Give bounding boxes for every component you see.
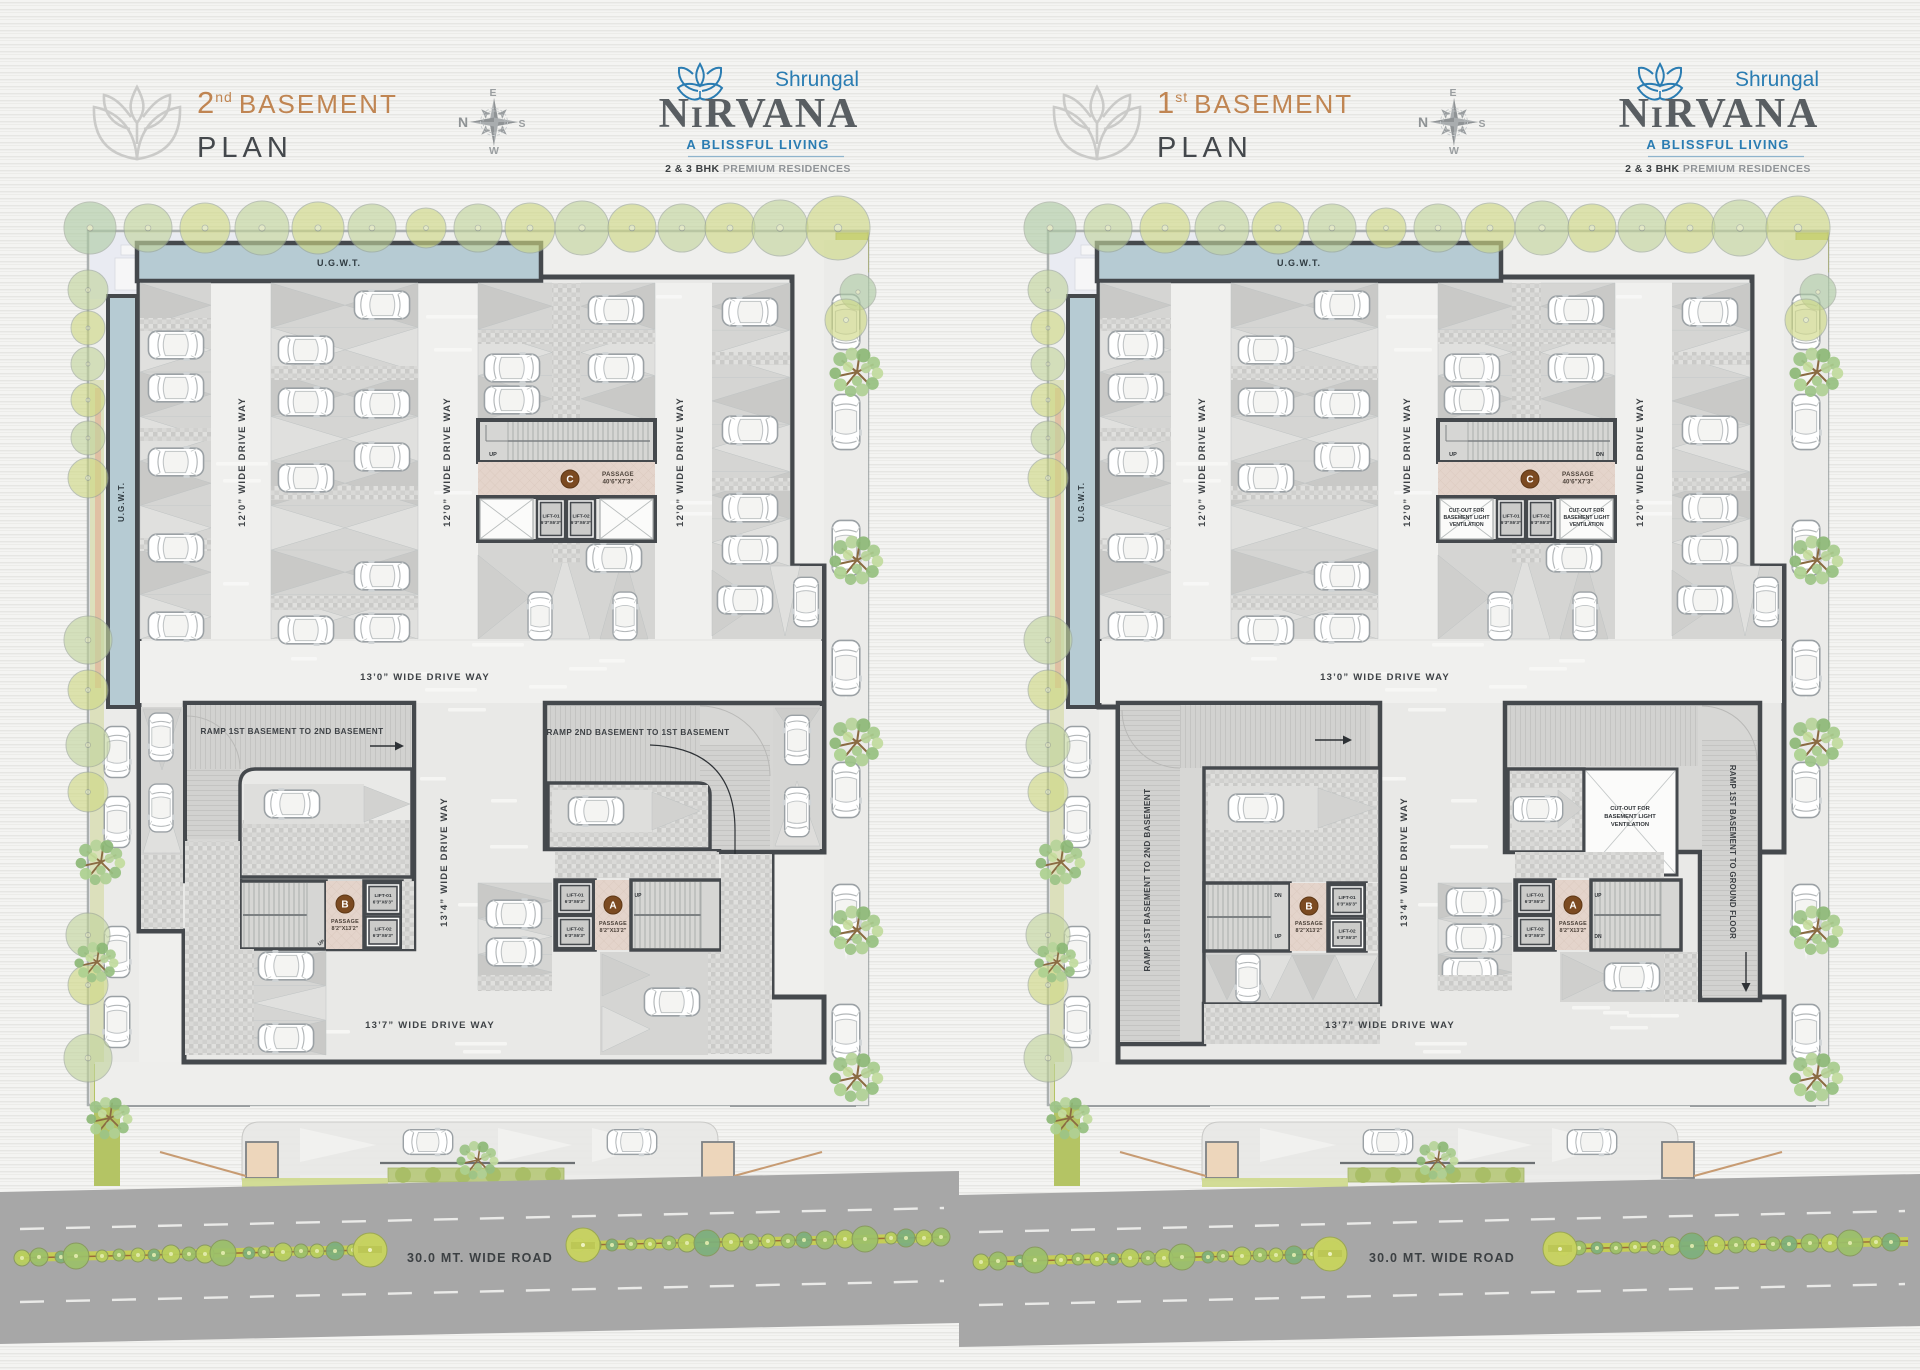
- svg-text:UP: UP: [635, 893, 643, 899]
- svg-text:30.0 MT. WIDE ROAD: 30.0 MT. WIDE ROAD: [407, 1251, 553, 1265]
- svg-text:2 & 3 BHK PREMIUM RESIDENCES: 2 & 3 BHK PREMIUM RESIDENCES: [1625, 163, 1811, 175]
- svg-text:12’0” WIDE DRIVE WAY: 12’0” WIDE DRIVE WAY: [675, 397, 686, 527]
- svg-text:VENTILATION: VENTILATION: [1611, 822, 1649, 828]
- svg-text:LIFT-01: LIFT-01: [566, 893, 583, 899]
- svg-text:E: E: [489, 87, 496, 99]
- svg-text:PLAN: PLAN: [197, 132, 293, 164]
- svg-text:PLAN: PLAN: [1157, 132, 1253, 164]
- svg-text:LIFT-01: LIFT-01: [374, 893, 391, 899]
- svg-text:LIFT-02: LIFT-02: [1532, 514, 1549, 520]
- svg-text:LIFT-02: LIFT-02: [566, 927, 583, 933]
- svg-text:DN: DN: [1274, 893, 1282, 899]
- svg-text:40’6”X7’3”: 40’6”X7’3”: [603, 479, 634, 486]
- svg-text:13’4” WIDE DRIVE WAY: 13’4” WIDE DRIVE WAY: [1399, 797, 1410, 927]
- svg-text:B: B: [1305, 902, 1312, 913]
- svg-text:RAMP 1ST BASEMENT TO 2ND BASEM: RAMP 1ST BASEMENT TO 2ND BASEMENT: [200, 727, 383, 736]
- svg-text:LIFT-02: LIFT-02: [572, 514, 589, 520]
- svg-text:12’0” WIDE DRIVE WAY: 12’0” WIDE DRIVE WAY: [1402, 397, 1413, 527]
- svg-text:VENTILATION: VENTILATION: [1449, 522, 1483, 528]
- svg-text:6’3”X6’3”: 6’3”X6’3”: [373, 933, 393, 938]
- svg-text:S: S: [1478, 118, 1485, 130]
- svg-text:UP: UP: [1275, 934, 1283, 940]
- svg-text:LIFT-01: LIFT-01: [1338, 895, 1355, 901]
- svg-text:BASEMENT LIGHT: BASEMENT LIGHT: [1443, 515, 1490, 521]
- svg-text:8’2”X13’2”: 8’2”X13’2”: [600, 928, 627, 934]
- svg-text:UP: UP: [1449, 452, 1457, 458]
- svg-text:W: W: [1449, 145, 1459, 157]
- svg-text:6’3”X6’3”: 6’3”X6’3”: [373, 900, 393, 905]
- svg-text:A: A: [609, 901, 616, 912]
- svg-text:C: C: [566, 475, 573, 486]
- svg-text:6’3”X6’3”: 6’3”X6’3”: [565, 899, 585, 904]
- svg-text:PASSAGE: PASSAGE: [1562, 471, 1594, 478]
- svg-text:6’3”X6’3”: 6’3”X6’3”: [565, 933, 585, 938]
- svg-text:UP: UP: [489, 452, 497, 458]
- svg-text:U.G.W.T.: U.G.W.T.: [1077, 482, 1086, 522]
- svg-text:13’0” WIDE DRIVE WAY: 13’0” WIDE DRIVE WAY: [360, 672, 490, 683]
- svg-text:12’0” WIDE DRIVE WAY: 12’0” WIDE DRIVE WAY: [442, 397, 453, 527]
- svg-text:RAMP 1ST BASEMENT TO 2ND BASEM: RAMP 1ST BASEMENT TO 2ND BASEMENT: [1143, 788, 1152, 971]
- svg-text:Shrungal: Shrungal: [1735, 68, 1819, 91]
- svg-text:E: E: [1449, 87, 1456, 99]
- svg-text:8’2”X13’2”: 8’2”X13’2”: [1560, 928, 1587, 934]
- svg-text:U.G.W.T.: U.G.W.T.: [317, 258, 361, 268]
- svg-text:VENTILATION: VENTILATION: [1569, 522, 1603, 528]
- svg-text:BASEMENT LIGHT: BASEMENT LIGHT: [1563, 515, 1610, 521]
- svg-text:A BLISSFUL LIVING: A BLISSFUL LIVING: [686, 137, 829, 152]
- svg-text:6’3”X6’3”: 6’3”X6’3”: [571, 520, 591, 525]
- svg-text:RAMP 2ND BASEMENT TO 1ST BASEM: RAMP 2ND BASEMENT TO 1ST BASEMENT: [546, 728, 729, 737]
- svg-text:6’3”X6’3”: 6’3”X6’3”: [1525, 933, 1545, 938]
- svg-text:6’3”X6’3”: 6’3”X6’3”: [1531, 520, 1551, 525]
- svg-text:6’3”X6’3”: 6’3”X6’3”: [1501, 520, 1521, 525]
- svg-text:LIFT-02: LIFT-02: [374, 927, 391, 933]
- svg-text:Shrungal: Shrungal: [775, 68, 859, 91]
- svg-text:RAMP 1ST BASEMENT TO GROUND FL: RAMP 1ST BASEMENT TO GROUND FLOOR: [1728, 765, 1737, 939]
- svg-text:CUT-OUT FOR: CUT-OUT FOR: [1610, 806, 1650, 812]
- svg-text:6’3”X6’3”: 6’3”X6’3”: [1337, 902, 1357, 907]
- svg-text:PASSAGE: PASSAGE: [331, 919, 359, 925]
- svg-text:W: W: [489, 145, 499, 157]
- svg-text:LIFT-02: LIFT-02: [1526, 927, 1543, 933]
- svg-text:6’3”X6’3”: 6’3”X6’3”: [541, 520, 561, 525]
- svg-text:8’2”X13’2”: 8’2”X13’2”: [1296, 928, 1323, 934]
- svg-text:13’0” WIDE DRIVE WAY: 13’0” WIDE DRIVE WAY: [1320, 672, 1450, 683]
- svg-text:13’4” WIDE DRIVE WAY: 13’4” WIDE DRIVE WAY: [439, 797, 450, 927]
- svg-text:12’0” WIDE DRIVE WAY: 12’0” WIDE DRIVE WAY: [1197, 397, 1208, 527]
- svg-text:A BLISSFUL LIVING: A BLISSFUL LIVING: [1646, 137, 1789, 152]
- svg-text:C: C: [1526, 475, 1533, 486]
- svg-text:LIFT-01: LIFT-01: [1526, 893, 1543, 899]
- svg-text:6’3”X6’3”: 6’3”X6’3”: [1337, 935, 1357, 940]
- svg-text:U.G.W.T.: U.G.W.T.: [117, 482, 126, 522]
- svg-text:8’2”X13’2”: 8’2”X13’2”: [332, 926, 359, 932]
- svg-text:12’0” WIDE DRIVE WAY: 12’0” WIDE DRIVE WAY: [237, 397, 248, 527]
- svg-text:S: S: [518, 118, 525, 130]
- svg-text:PASSAGE: PASSAGE: [1295, 921, 1323, 927]
- svg-text:PASSAGE: PASSAGE: [1559, 921, 1587, 927]
- svg-text:12’0” WIDE DRIVE WAY: 12’0” WIDE DRIVE WAY: [1635, 397, 1646, 527]
- svg-text:CUT-OUT FOR: CUT-OUT FOR: [1569, 508, 1605, 514]
- svg-text:PASSAGE: PASSAGE: [599, 921, 627, 927]
- svg-text:13’7” WIDE DRIVE WAY: 13’7” WIDE DRIVE WAY: [1325, 1020, 1455, 1031]
- svg-text:DN: DN: [1594, 934, 1602, 940]
- svg-text:6’3”X6’3”: 6’3”X6’3”: [1525, 899, 1545, 904]
- svg-text:N: N: [458, 114, 468, 130]
- svg-text:LIFT-01: LIFT-01: [1502, 514, 1519, 520]
- svg-text:PASSAGE: PASSAGE: [602, 471, 634, 478]
- svg-text:B: B: [341, 900, 348, 911]
- svg-text:DN: DN: [1596, 452, 1604, 458]
- svg-text:40’6”X7’3”: 40’6”X7’3”: [1563, 479, 1594, 486]
- svg-text:NIRVANA: NIRVANA: [659, 91, 860, 137]
- svg-text:CUT-OUT FOR: CUT-OUT FOR: [1449, 508, 1485, 514]
- svg-text:13’7” WIDE DRIVE WAY: 13’7” WIDE DRIVE WAY: [365, 1020, 495, 1031]
- svg-text:UP: UP: [1595, 893, 1603, 899]
- svg-text:N: N: [1418, 114, 1428, 130]
- svg-text:A: A: [1569, 901, 1576, 912]
- svg-text:U.G.W.T.: U.G.W.T.: [1277, 258, 1321, 268]
- svg-text:BASEMENT LIGHT: BASEMENT LIGHT: [1604, 814, 1656, 820]
- svg-text:2 & 3 BHK PREMIUM RESIDENCES: 2 & 3 BHK PREMIUM RESIDENCES: [665, 163, 851, 175]
- svg-text:30.0 MT. WIDE ROAD: 30.0 MT. WIDE ROAD: [1369, 1251, 1515, 1265]
- svg-text:NIRVANA: NIRVANA: [1619, 91, 1820, 137]
- svg-text:LIFT-01: LIFT-01: [542, 514, 559, 520]
- svg-text:LIFT-02: LIFT-02: [1338, 929, 1355, 935]
